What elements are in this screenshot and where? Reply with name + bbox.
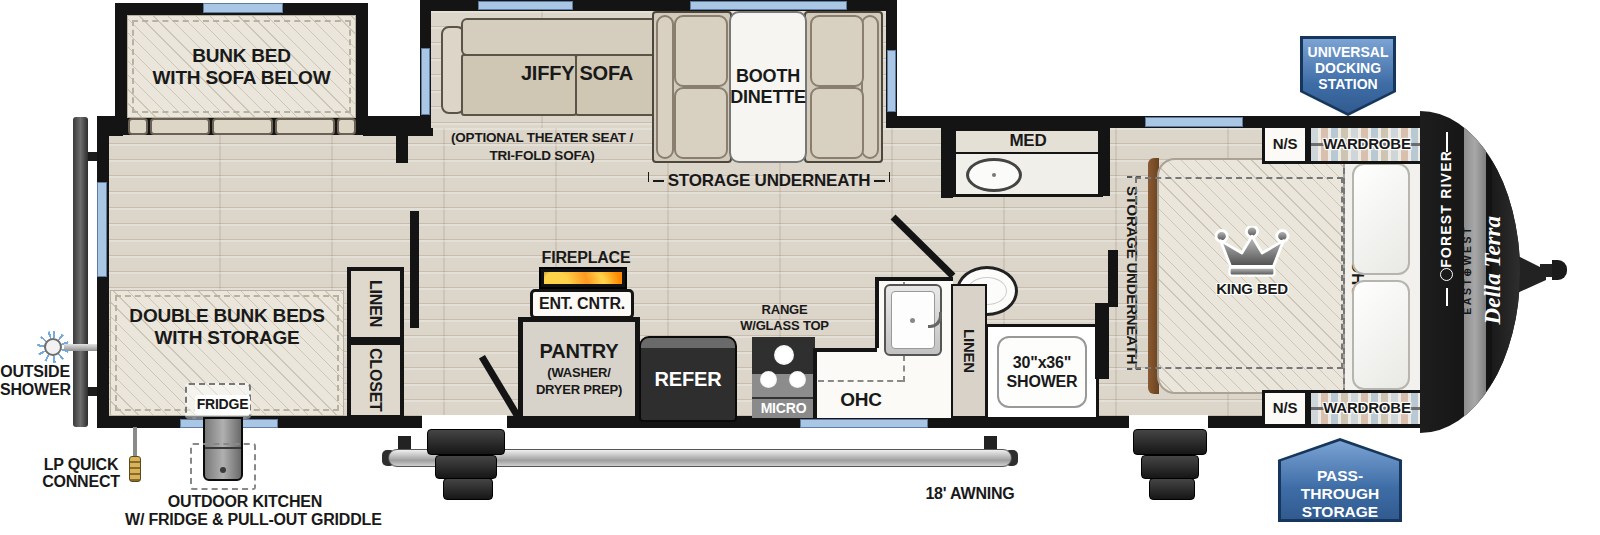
window-top-bedroom: [1145, 117, 1243, 127]
outdoor-kitchen-dashed-outline: [190, 443, 256, 490]
awning-label: 18' AWNING: [915, 485, 1025, 503]
optional-sofa-note: (OPTIONAL THEATER SEAT / TRI-FOLD SOFA): [447, 129, 637, 164]
pass-through-badge-border: PASS-THROUGH STORAGE: [1278, 438, 1402, 522]
brand-maker: FOREST RIVER: [1432, 155, 1460, 263]
entry-step: [1141, 455, 1199, 479]
bench-seat-cushion: [810, 87, 864, 159]
pillow: [1352, 163, 1410, 275]
entry-step: [1133, 429, 1207, 455]
bench-seat-cushion: [674, 87, 728, 159]
closet-label: CLOSET: [367, 348, 385, 412]
fireplace: [539, 267, 627, 289]
vanity-drain: [992, 173, 996, 177]
sofa-cushion: [150, 118, 210, 135]
pantry-sub-label: (WASHER/ DRYER PREP): [536, 365, 622, 398]
bunk-bed-mattress: BUNK BED WITH SOFA BELOW: [127, 15, 356, 118]
entry-door-bedroom: [1129, 415, 1208, 429]
bath-linen: LINEN: [951, 284, 987, 418]
med-cabinet: MED: [953, 128, 1103, 197]
bracket-tick: [889, 172, 890, 182]
fireplace-flames: [544, 272, 622, 284]
dinette-bench: [652, 11, 732, 163]
wall-stub: [396, 136, 408, 163]
window-bottom-kitchen: [800, 419, 928, 428]
med-label: MED: [1009, 132, 1046, 151]
ns-top-label: N/S: [1273, 136, 1297, 153]
outdoor-kitchen-label: OUTDOOR KITCHEN W/ FRIDGE & PULL-OUT GRI…: [125, 493, 365, 530]
shower-pipe: [64, 344, 100, 351]
entry-step: [427, 429, 505, 455]
fridge-label-box: FRIDGE: [195, 395, 250, 415]
brand-series: EAST⊕WEST: [1458, 180, 1476, 360]
range-micro-unit: MICRO: [752, 337, 815, 418]
window-rear: [97, 182, 107, 277]
dinette-storage-callout: STORAGE UNDERNEATH: [648, 172, 890, 196]
fridge-label: FRIDGE: [197, 397, 249, 412]
bench-seat-cushion: [810, 15, 864, 87]
dinette-label: BOOTH DINETTE: [730, 66, 806, 107]
window-dinette-slide-right: [887, 50, 896, 112]
window-living-slide-left: [421, 48, 430, 115]
bunk-bed-label: BUNK BED WITH SOFA BELOW: [153, 45, 331, 89]
docking-badge-border: UNIVERSAL DOCKING STATION: [1300, 36, 1396, 116]
bench-seat-cushion: [674, 15, 728, 87]
pass-through-storage-badge: PASS-THROUGH STORAGE: [1281, 441, 1399, 519]
dinette-storage-label: STORAGE UNDERNEATH: [668, 172, 871, 191]
rear-bumper: [73, 117, 88, 427]
closet: CLOSET: [347, 341, 404, 419]
pillow: [1352, 280, 1410, 390]
wall-bath-right-upper: [1098, 128, 1110, 196]
dinette-table: BOOTH DINETTE: [729, 11, 807, 163]
wardrobe-bottom-label: WARDROBE: [1323, 400, 1411, 417]
refer-label: REFER: [655, 368, 722, 390]
burner: [789, 371, 806, 388]
brand-model: Della Terra: [1476, 170, 1510, 370]
brand-emblem-icon: [1440, 268, 1453, 281]
wall-bedroom-entry: [1108, 250, 1118, 307]
wall-shower-right: [1095, 303, 1109, 379]
double-bunks-label: DOUBLE BUNK BEDS WITH STORAGE: [111, 305, 343, 349]
shower: 30"x36" SHOWER: [985, 324, 1099, 420]
bracket-dash: [874, 180, 885, 182]
cap-deco-line: [1446, 288, 1448, 306]
brand-model-label: Della Terra: [1480, 216, 1506, 324]
sink-drain: [910, 318, 915, 323]
ohc-dashed-line: [818, 380, 903, 382]
lp-quick-connect-fitting: [129, 456, 141, 482]
sofa-armrest: [128, 118, 148, 135]
bracket-dash: [653, 180, 664, 182]
med-header: MED: [956, 131, 1100, 154]
bench-back-cushion: [656, 15, 674, 159]
pantry-label: PANTRY: [540, 340, 619, 362]
sofa-cushion: [275, 118, 335, 135]
sofa-armrest: [337, 118, 356, 135]
ent-center-label: ENT. CNTR.: [539, 295, 625, 313]
kitchen-sink: [884, 284, 942, 356]
wardrobe-top-label: WARDROBE: [1323, 136, 1411, 153]
linen-label: LINEN: [367, 280, 385, 327]
wardrobe-top: WARDROBE: [1308, 125, 1426, 164]
fireplace-label: FIREPLACE: [536, 249, 636, 267]
nightstand-top: N/S: [1262, 125, 1308, 164]
micro-label: MICRO: [761, 401, 807, 416]
entry-step: [443, 478, 493, 500]
wardrobe-bottom: WARDROBE: [1308, 390, 1426, 427]
entry-step: [1149, 478, 1195, 500]
pantry: PANTRY (WASHER/ DRYER PREP): [518, 317, 640, 421]
entry-door-main: [422, 415, 507, 429]
outside-shower-label: OUTSIDE SHOWER: [0, 363, 70, 400]
sofa-below-cushions: [128, 118, 356, 135]
outside-shower-icon: [44, 338, 62, 356]
nightstand-bottom: N/S: [1262, 390, 1308, 427]
window-living-slide: [478, 1, 573, 10]
refrigerator: REFER: [639, 336, 737, 422]
burner: [760, 371, 777, 388]
microwave: MICRO: [752, 397, 815, 418]
linen-cabinet: LINEN: [347, 267, 404, 341]
hitch-coupler: [1552, 260, 1567, 280]
cap-deco-line: [1446, 132, 1448, 152]
brand-series-label: EAST⊕WEST: [1461, 225, 1473, 315]
dinette-bench: [804, 11, 883, 163]
brand-maker-label: FOREST RIVER: [1438, 150, 1454, 268]
sofa-cushion: [212, 118, 273, 135]
king-bed-label: KING BED: [1198, 281, 1306, 298]
floorplan-canvas: 18' AWNING OUTSIDE SHOWER BUNK BED WITH …: [0, 0, 1600, 535]
bracket-tick: [648, 172, 649, 182]
kitchen-ohc-label: OHC: [836, 390, 886, 411]
burner: [774, 345, 794, 365]
shower-label: 30"x36" SHOWER: [997, 336, 1087, 408]
range-label: RANGE W/GLASS TOP: [737, 302, 832, 333]
bath-linen-label: LINEN: [961, 329, 978, 373]
entry-step: [435, 455, 497, 479]
universal-docking-station-badge: UNIVERSAL DOCKING STATION: [1303, 39, 1393, 113]
wall-bath-left: [941, 116, 953, 198]
window-bunk-slide: [203, 3, 283, 13]
wall-bunkroom: [410, 211, 419, 328]
ns-bottom-label: N/S: [1273, 400, 1297, 417]
crown-icon: [1208, 226, 1296, 280]
sink-faucet: [928, 312, 942, 328]
window-dinette-slide: [690, 1, 847, 10]
lp-pipe: [133, 427, 137, 458]
entertainment-center: ENT. CNTR.: [530, 289, 634, 319]
lp-quick-connect-label: LP QUICK CONNECT: [35, 457, 127, 491]
